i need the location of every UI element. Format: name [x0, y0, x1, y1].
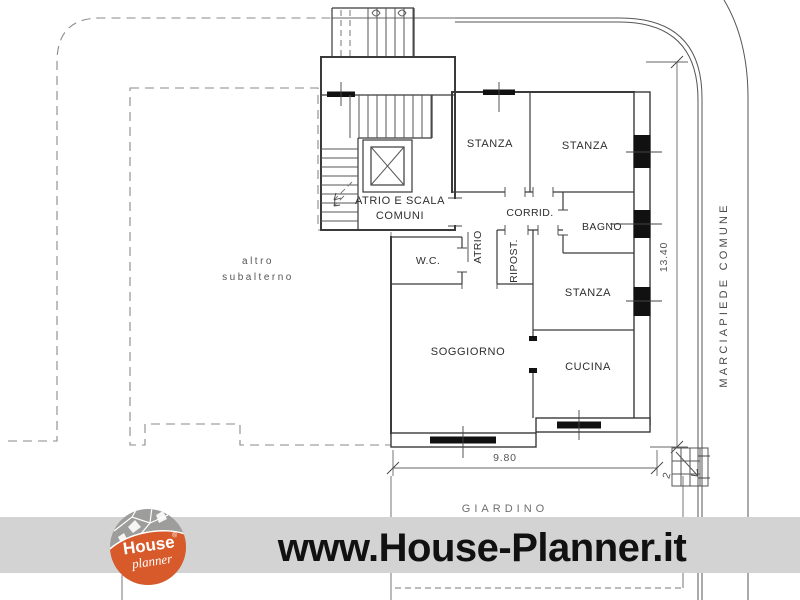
- room-label-stanza-nw: STANZA: [467, 138, 513, 150]
- altro-subalterno-label-line2: subalterno: [222, 272, 294, 283]
- window-right-1: [634, 135, 651, 168]
- altro-subalterno-label-line1: altro: [242, 256, 274, 267]
- footer: www.House-Planner.it House planner ®: [0, 507, 800, 597]
- dimension-vertical: 13.40: [646, 56, 688, 453]
- dimension-horizontal: 9.80: [387, 450, 663, 476]
- footer-url: www.House-Planner.it: [277, 526, 687, 570]
- room-label-corridoio: CORRID.: [506, 207, 553, 219]
- external-top-stair: [332, 8, 414, 57]
- atrio-scala-label-line1: ATRIO E SCALA: [355, 195, 445, 207]
- dimension-label-13-40: 13.40: [658, 242, 670, 272]
- atrio-scala-label-line2: COMUNI: [376, 210, 424, 222]
- dimension-label-9-80: 9.80: [493, 452, 517, 464]
- floor-plan-page: altro subalterno MARCIAPIEDE COMUNE GIAR…: [0, 0, 800, 600]
- property-boundary: [8, 18, 332, 441]
- hatched-area-altro-subalterno: altro subalterno: [130, 88, 391, 445]
- stairwell-block: ATRIO E SCALA COMUNI: [321, 57, 455, 230]
- room-label-bagno: BAGNO: [582, 221, 622, 233]
- floor-plan-drawing: altro subalterno MARCIAPIEDE COMUNE GIAR…: [0, 0, 800, 600]
- room-label-soggiorno: SOGGIORNO: [431, 346, 505, 358]
- room-label-cucina: CUCINA: [565, 361, 611, 373]
- windows: [430, 82, 662, 458]
- room-label-wc: W.C.: [416, 255, 440, 267]
- window-right-3: [634, 287, 651, 316]
- room-labels: STANZA STANZA CORRID. BAGNO ATRIO RIPOST…: [416, 138, 622, 373]
- exterior-step-bottom-right: 2: [660, 448, 710, 486]
- room-label-stanza-ne: STANZA: [562, 140, 608, 152]
- marciapiede-comune-label: MARCIAPIEDE COMUNE: [718, 202, 730, 387]
- room-label-atrio: ATRIO: [472, 230, 484, 263]
- apartment-walls: [391, 92, 650, 447]
- elevator: [363, 140, 412, 192]
- room-label-stanza-e: STANZA: [565, 287, 611, 299]
- room-label-ripostiglio: RIPOST.: [508, 239, 520, 283]
- giardino-label: GIARDINO: [462, 503, 548, 515]
